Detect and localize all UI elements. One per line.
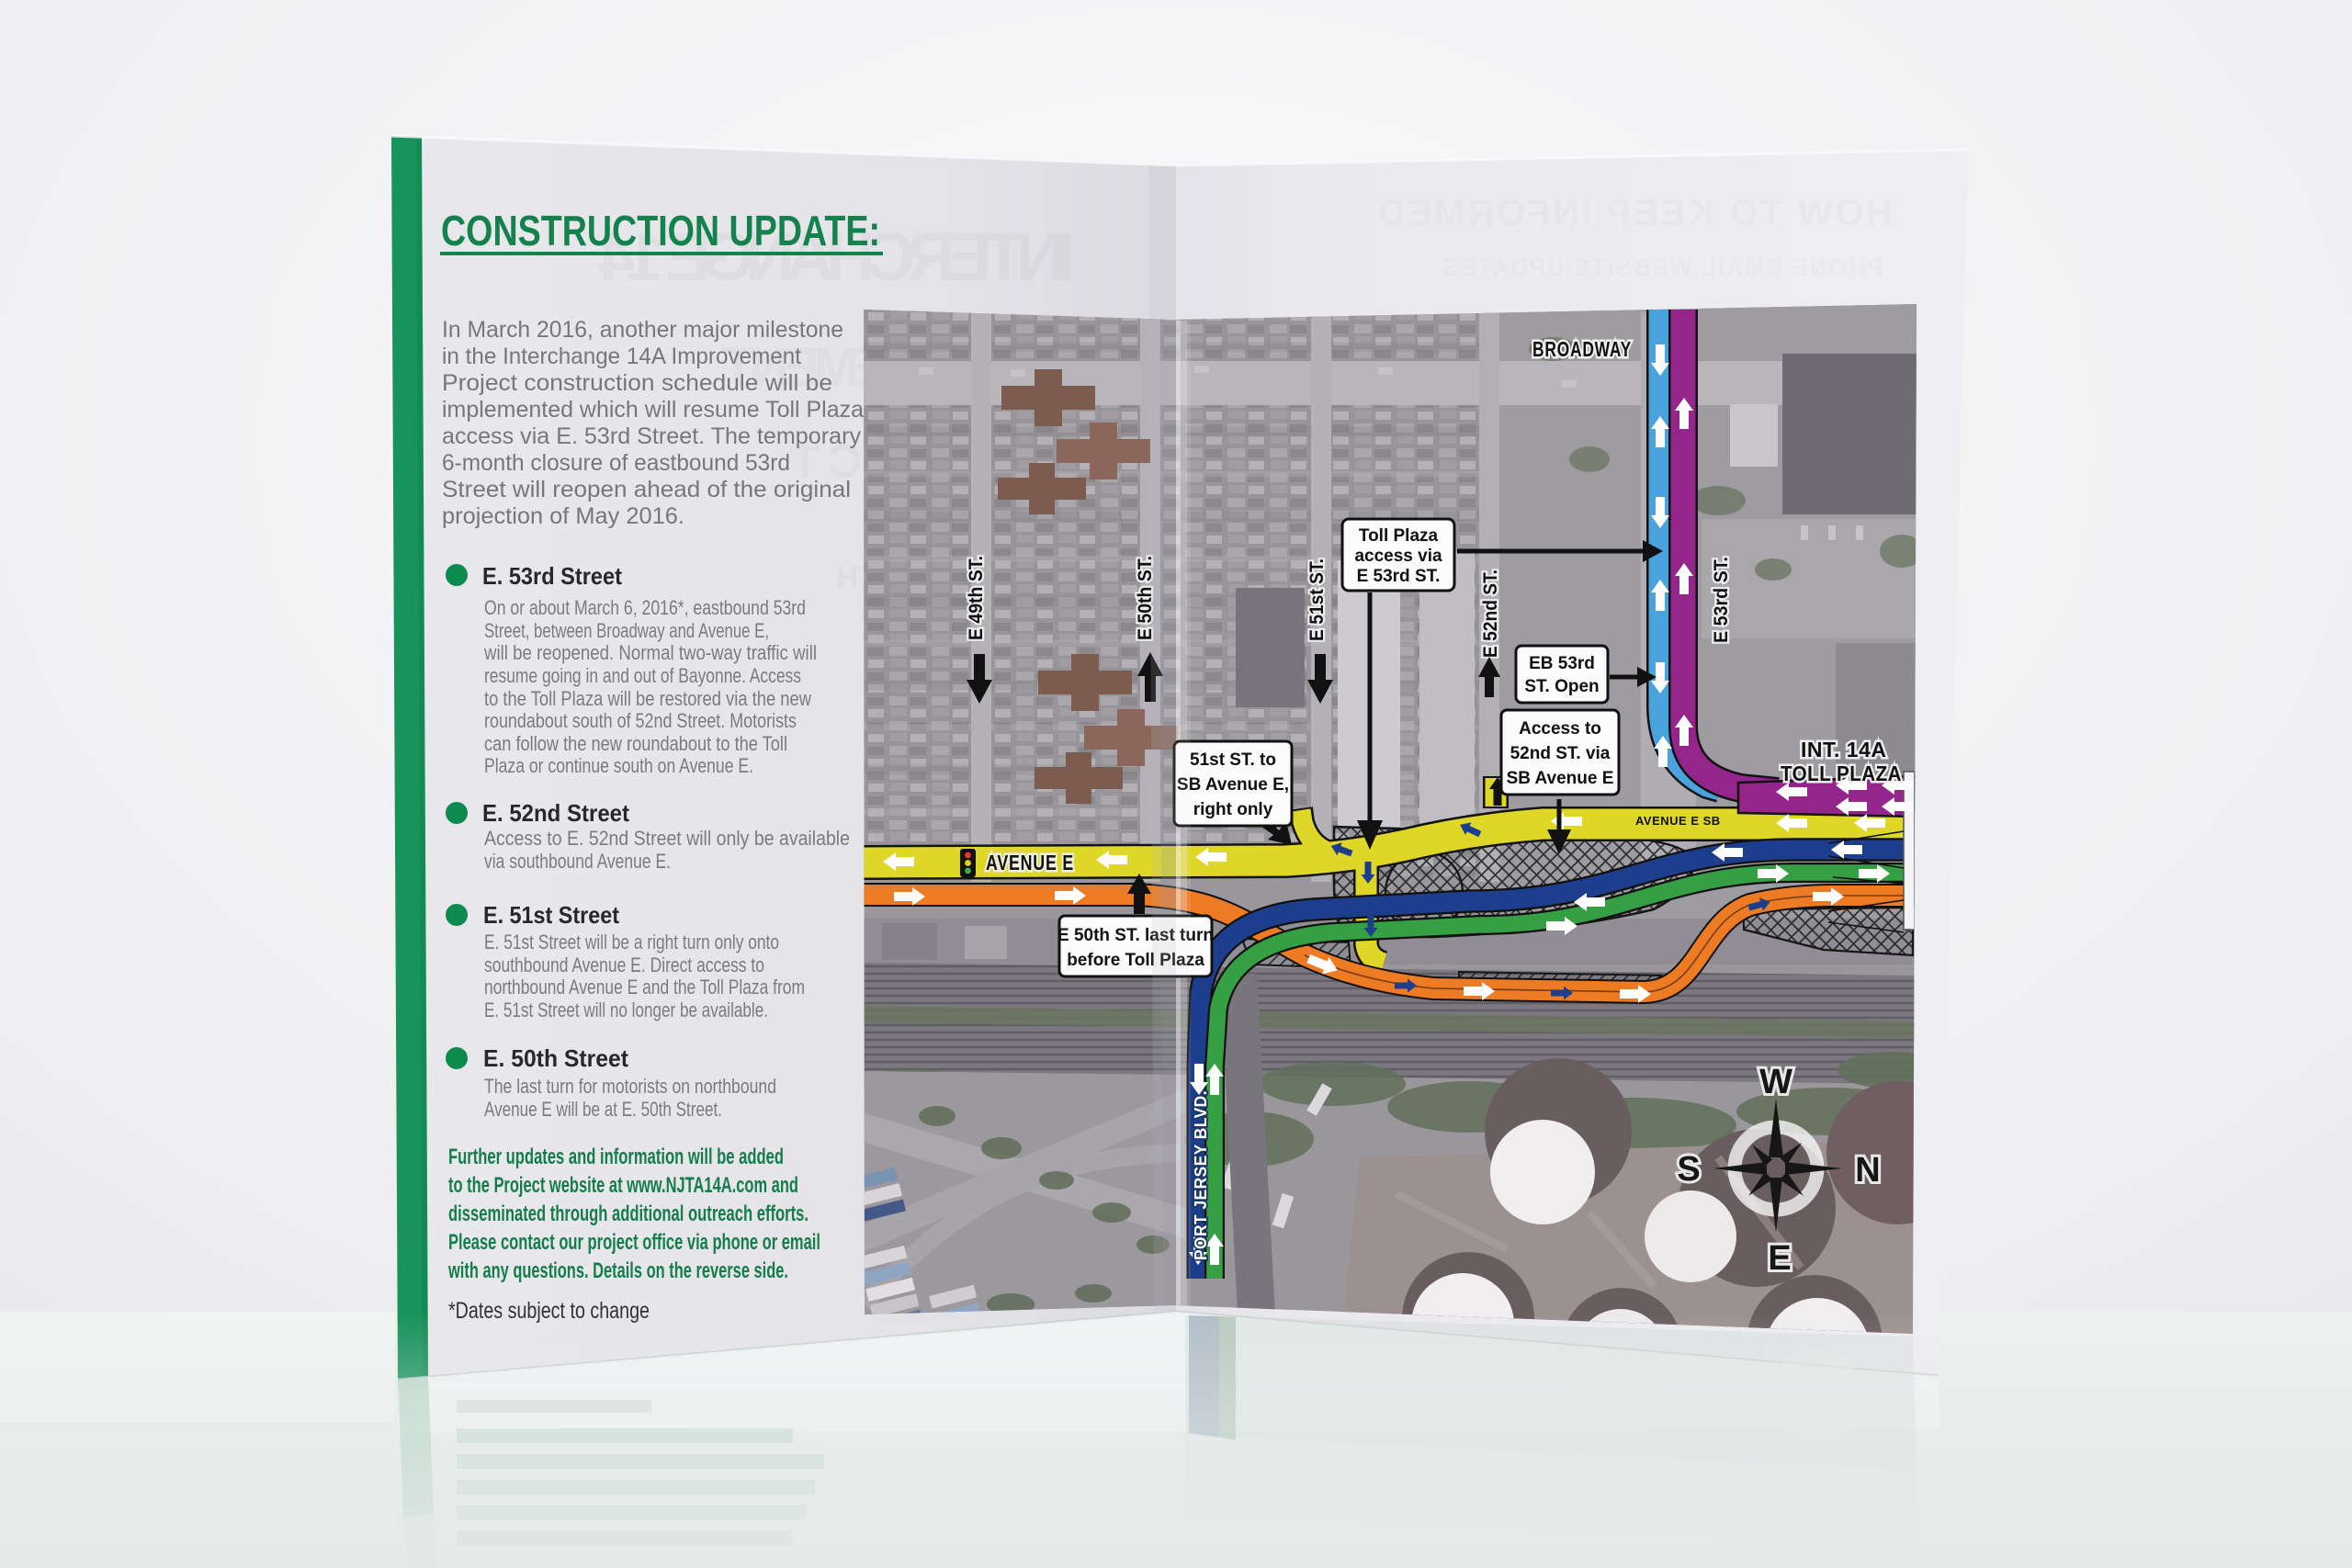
svg-text:Street will reopen ahead of th: Street will reopen ahead of the original (442, 477, 851, 502)
svg-text:implemented which will resume: implemented which will resume Toll Plaza (442, 397, 864, 423)
svg-text:E. 50th Street: E. 50th Street (483, 1044, 628, 1072)
svg-text:52nd ST. via: 52nd ST. via (1510, 744, 1611, 763)
svg-text:access via: access via (1354, 547, 1442, 566)
svg-text:roundabout south of 52nd Stree: roundabout south of 52nd Street. Motoris… (484, 709, 797, 732)
svg-text:with any questions. Details on: with any questions. Details on the rever… (447, 1258, 788, 1283)
svg-text:resume going in and out of Bay: resume going in and out of Bayonne. Acce… (484, 664, 801, 687)
svg-text:In March 2016, another major m: In March 2016, another major milestone (442, 317, 843, 343)
svg-text:EB 53rd: EB 53rd (1529, 654, 1595, 673)
svg-text:projection of May 2016.: projection of May 2016. (442, 503, 684, 529)
svg-text:51st ST. to: 51st ST. to (1190, 750, 1276, 770)
svg-text:Project construction schedule: Project construction schedule will be (442, 370, 832, 396)
svg-text:AVENUE E SB: AVENUE E SB (1635, 814, 1721, 828)
svg-text:northbound Avenue E and the To: northbound Avenue E and the Toll Plaza f… (484, 976, 805, 998)
svg-text:HOW TO KEEP INFORMED: HOW TO KEEP INFORMED (1378, 193, 1893, 233)
svg-text:Street, between Broadway and A: Street, between Broadway and Avenue E, (484, 619, 769, 642)
svg-text:will be reopened. Normal two-w: will be reopened. Normal two-way traffic… (483, 641, 817, 664)
svg-text:southbound Avenue E. Direct ac: southbound Avenue E. Direct access to (484, 953, 764, 976)
svg-text:E 53rd ST.: E 53rd ST. (1357, 567, 1441, 586)
svg-text:can follow the new roundabout: can follow the new roundabout to the Tol… (484, 732, 787, 755)
svg-text:Access to: Access to (1519, 719, 1601, 739)
svg-text:Access to E. 52nd Street will: Access to E. 52nd Street will only be av… (484, 827, 850, 850)
svg-text:PORT JERSEY BLVD.: PORT JERSEY BLVD. (1192, 1090, 1210, 1260)
svg-text:E 51st ST.: E 51st ST. (1306, 558, 1328, 641)
svg-text:INT. 14A: INT. 14A (1801, 738, 1886, 761)
svg-text:E. 51st Street will no longer: E. 51st Street will no longer be availab… (484, 998, 768, 1021)
svg-text:SB Avenue E: SB Avenue E (1507, 769, 1614, 788)
svg-text:CONSTRUCTION UPDATE:: CONSTRUCTION UPDATE: (441, 207, 880, 254)
svg-text:Plaza or continue south on Ave: Plaza or continue south on Avenue E. (484, 754, 753, 777)
svg-text:Avenue E will be at E. 50th St: Avenue E will be at E. 50th Street. (484, 1098, 722, 1121)
svg-text:to the Project website at www.: to the Project website at www.NJTA14A.co… (448, 1173, 798, 1198)
svg-text:disseminated through additiona: disseminated through additional outreach… (448, 1201, 808, 1226)
svg-text:BROADWAY: BROADWAY (1532, 337, 1632, 361)
svg-text:in the Interchange 14A Improve: in the Interchange 14A Improvement (442, 344, 801, 369)
svg-text:E 49th ST.: E 49th ST. (966, 556, 987, 640)
svg-text:On or about March 6, 2016*, ea: On or about March 6, 2016*, eastbound 53… (484, 596, 806, 619)
svg-text:via southbound Avenue E.: via southbound Avenue E. (484, 850, 671, 873)
svg-text:E 53rd ST.: E 53rd ST. (1711, 557, 1732, 643)
svg-text:The last turn for motorists on: The last turn for motorists on northboun… (484, 1075, 776, 1098)
svg-text:Further updates and informatio: Further updates and information will be … (448, 1145, 784, 1169)
svg-text:ST. Open: ST. Open (1524, 677, 1599, 696)
svg-text:AVENUE E: AVENUE E (986, 851, 1074, 874)
svg-text:E. 51st Street will be a right: E. 51st Street will be a right turn only… (484, 931, 779, 953)
svg-text:PHONE EMAIL WEBSITE UPDATES: PHONE EMAIL WEBSITE UPDATES (1442, 254, 1883, 281)
svg-text:E. 53rd Street: E. 53rd Street (482, 562, 622, 590)
svg-text:N: N (1855, 1151, 1880, 1190)
svg-text:6-month closure of eastbound 5: 6-month closure of eastbound 53rd (442, 450, 790, 476)
svg-text:TOLL PLAZA: TOLL PLAZA (1781, 761, 1902, 785)
svg-text:right only: right only (1193, 800, 1273, 819)
svg-text:E: E (1768, 1239, 1791, 1278)
svg-text:E 52nd ST.: E 52nd ST. (1480, 570, 1501, 658)
svg-text:S: S (1677, 1150, 1700, 1189)
svg-text:Please contact our project off: Please contact our project office via ph… (448, 1230, 820, 1255)
svg-text:Toll Plaza: Toll Plaza (1359, 526, 1439, 546)
svg-text:SB Avenue E,: SB Avenue E, (1177, 775, 1289, 795)
svg-text:E. 51st Street: E. 51st Street (483, 901, 619, 929)
svg-text:to the Toll Plaza will be rest: to the Toll Plaza will be restored via t… (484, 687, 811, 710)
svg-text:E. 52nd Street: E. 52nd Street (482, 799, 629, 827)
svg-text:access via E. 53rd Street. The: access via E. 53rd Street. The temporary (442, 423, 862, 449)
svg-text:W: W (1759, 1063, 1792, 1101)
